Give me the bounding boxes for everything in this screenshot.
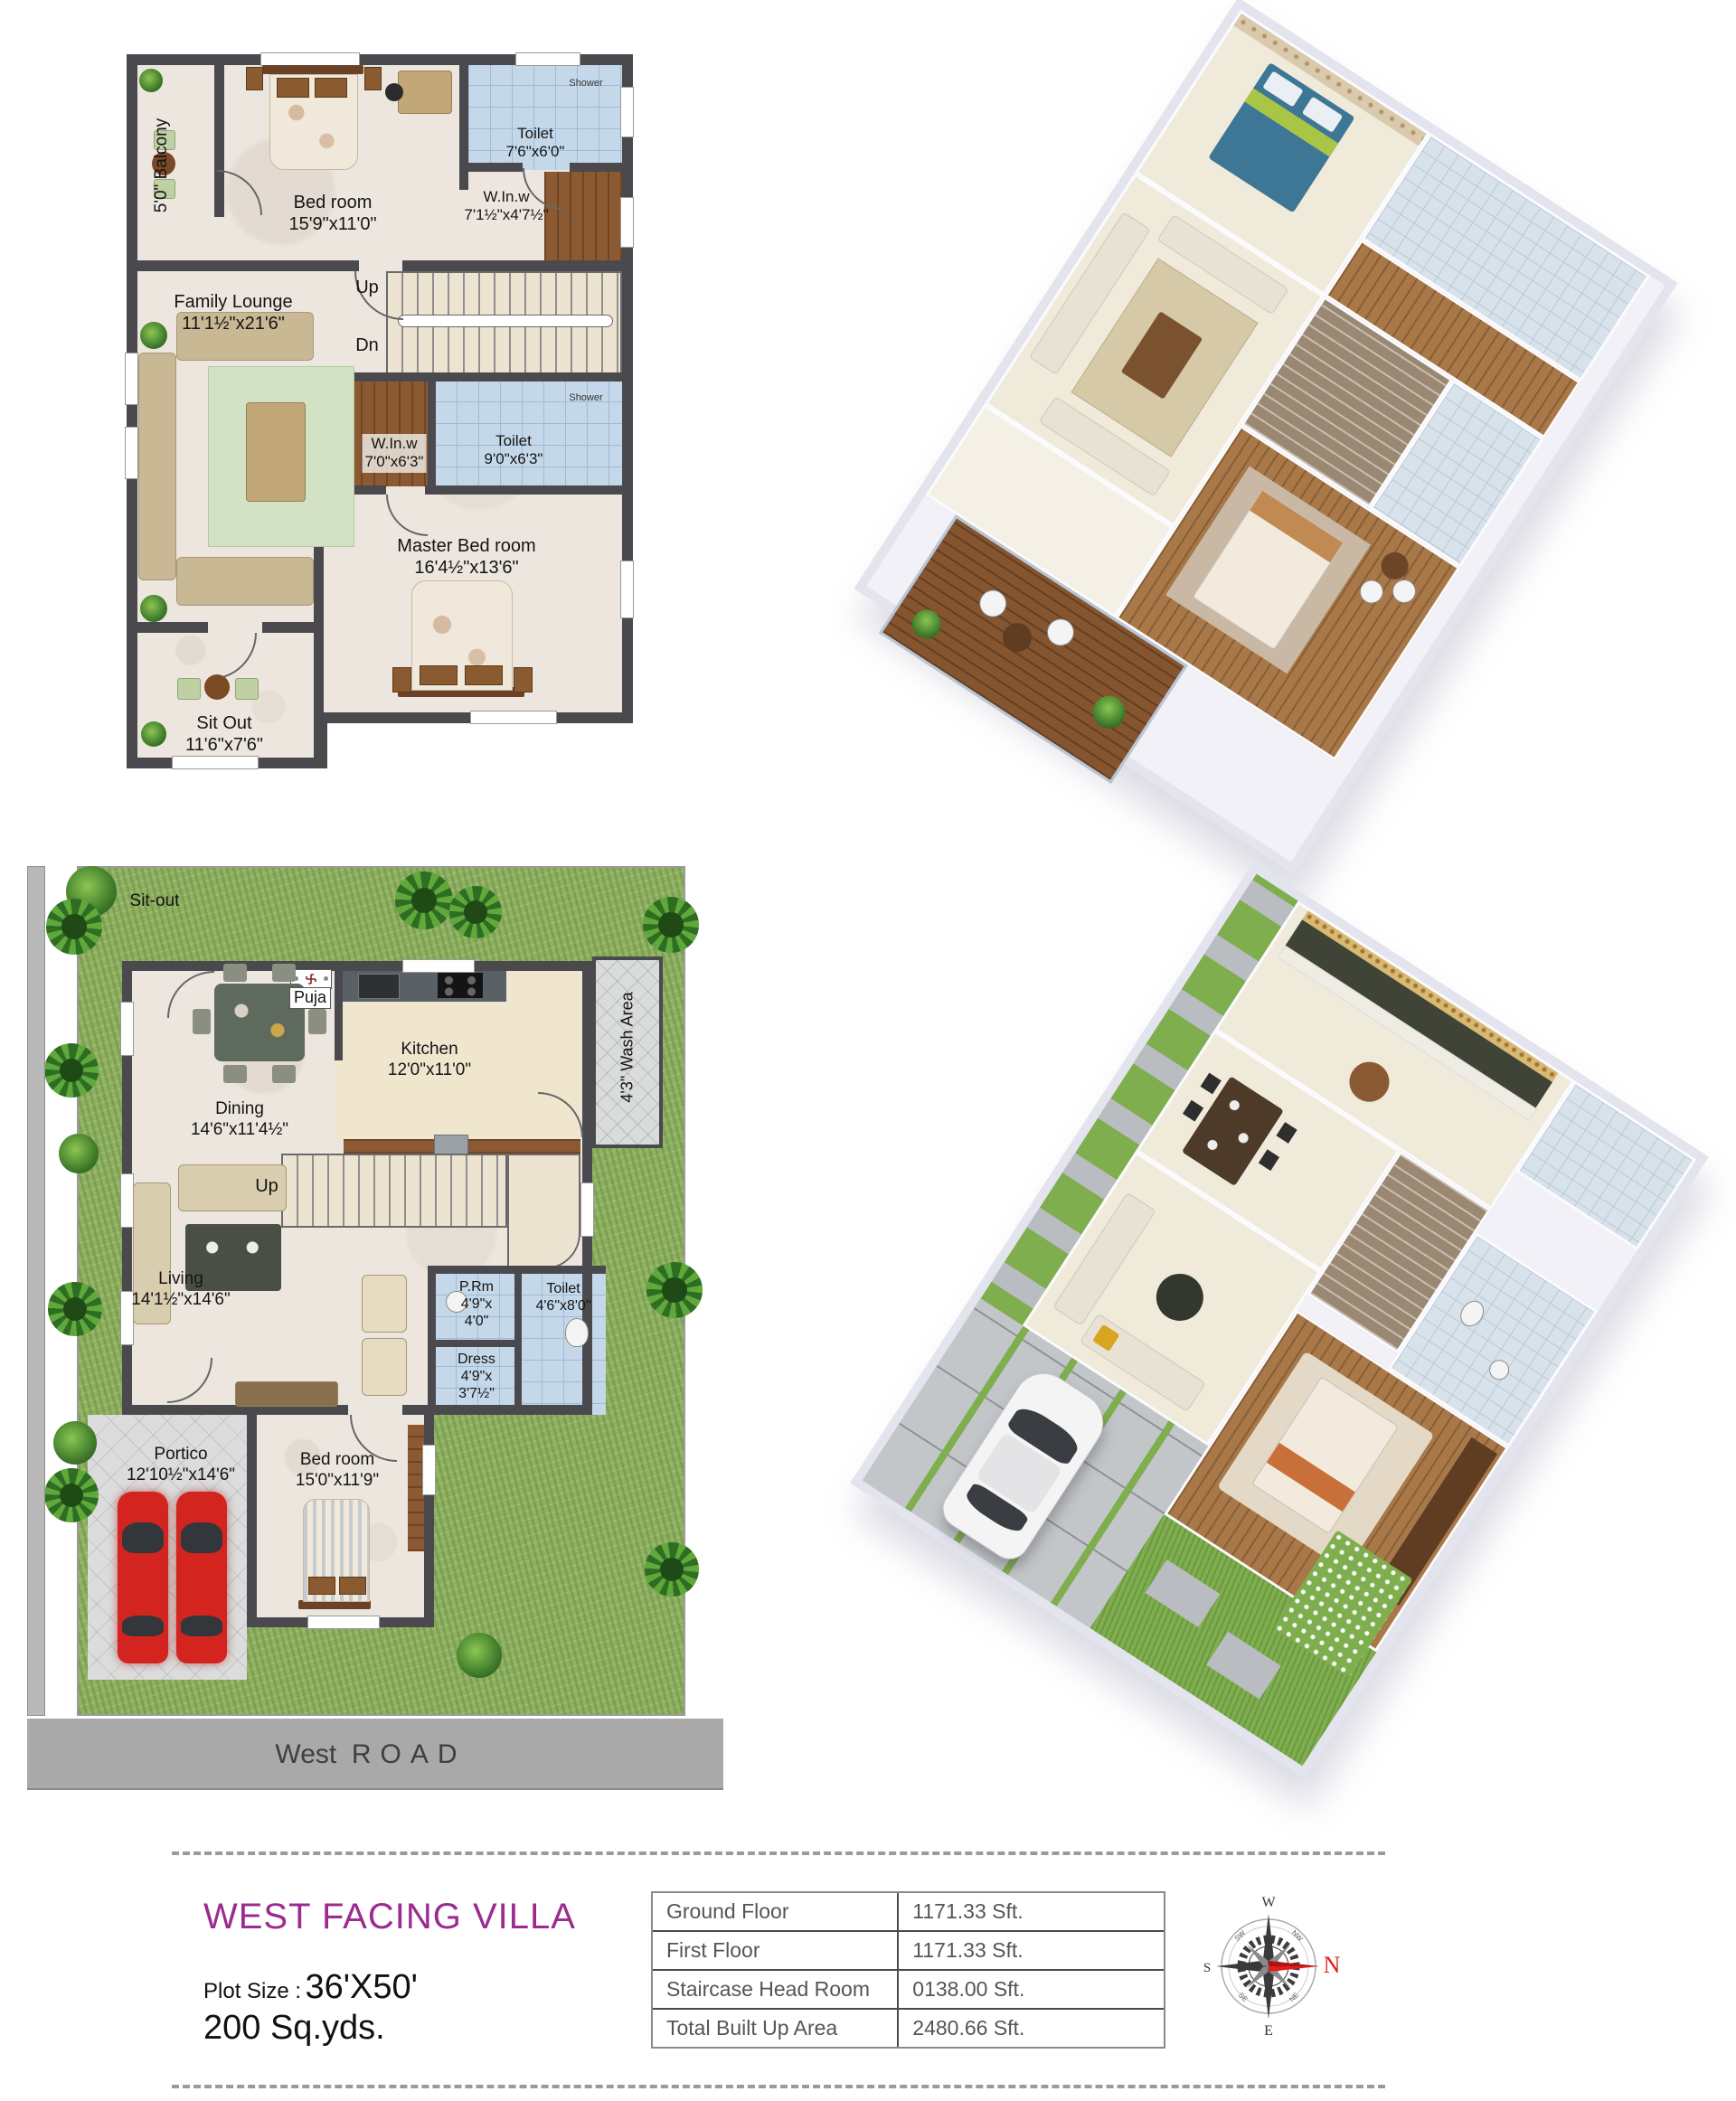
compass-east: E xyxy=(1264,2023,1273,2039)
compass-nw: NW xyxy=(1290,1928,1305,1943)
dining-label: Dining 14'6"x11'4½" xyxy=(191,1099,288,1141)
window xyxy=(172,756,259,769)
room-dims: 12'0"x11'0" xyxy=(388,1060,471,1079)
wall-balcony-bottom xyxy=(127,260,224,271)
stair-rail xyxy=(398,315,613,327)
iso-chair xyxy=(1259,1149,1279,1171)
red-car xyxy=(176,1492,227,1663)
dining-chair xyxy=(272,964,296,982)
window xyxy=(125,353,138,405)
ground-floor-site-plan: Sit-out Puja Kitchen 12'0"x11'0" 4'3" Wa… xyxy=(77,866,685,1716)
window xyxy=(125,427,138,479)
room-dims: 3'7½" xyxy=(458,1386,495,1401)
family-lounge-label: Family Lounge 11'1½"x21'6" xyxy=(174,291,292,334)
puja-label: Puja xyxy=(289,987,331,1009)
dn-label: Dn xyxy=(355,334,379,356)
room-name: Dress xyxy=(458,1352,495,1367)
palm-tree xyxy=(44,1043,99,1098)
sitout-label: Sit Out 11'6"x7'6" xyxy=(185,712,263,756)
road-word: West xyxy=(275,1739,336,1769)
first-floor-3d-view xyxy=(854,0,1677,874)
living-armchair xyxy=(362,1338,407,1396)
road-label: West ROAD xyxy=(275,1738,466,1771)
room-dims: 14'6"x11'4½" xyxy=(191,1120,288,1139)
plant xyxy=(140,595,167,622)
room-dims: 7'1½"x4'7½" xyxy=(464,206,548,223)
palm-tree xyxy=(645,1542,699,1597)
stepping-stone xyxy=(1206,1632,1281,1700)
iso-chair xyxy=(1355,576,1388,608)
room-dims: 16'4½"x13'6" xyxy=(414,558,518,578)
ground-floor-3d-view xyxy=(850,862,1709,1778)
up-label: Up xyxy=(255,1175,278,1197)
wall-bedroom-bottom-a xyxy=(214,260,359,271)
room-dims: 9'0"x6'3" xyxy=(485,450,543,467)
dining-chair xyxy=(223,1065,247,1083)
kitchen-label: Kitchen 12'0"x11'0" xyxy=(388,1040,471,1081)
separator-bottom xyxy=(172,2085,1385,2088)
separator-top xyxy=(172,1851,1385,1855)
palm-tree xyxy=(646,1262,703,1318)
window xyxy=(402,959,475,973)
bush xyxy=(53,1421,97,1465)
table-row: Staircase Head Room 0138.00 Sft. xyxy=(653,1969,1164,2008)
room-name: Toilet xyxy=(495,432,532,449)
table-row: First Floor 1171.33 Sft. xyxy=(653,1930,1164,1969)
room-dims: 4'9"x xyxy=(461,1369,493,1384)
pillow xyxy=(465,665,503,685)
wall-toilet-top-bottom2 xyxy=(570,163,633,172)
iso-counter xyxy=(1286,919,1552,1107)
balcony-label: 5'0" Balcony xyxy=(152,89,172,242)
master-bedroom-label: Master Bed room 16'4½"x13'6" xyxy=(397,535,535,579)
iso-chair xyxy=(1388,575,1420,608)
iso-breakfast-table xyxy=(1342,1054,1397,1109)
bed-nightstand xyxy=(364,67,382,90)
wall-winw-toilet-div xyxy=(428,382,436,486)
room-name: Portico xyxy=(154,1445,207,1464)
area-table: Ground Floor 1171.33 Sft. First Floor 11… xyxy=(651,1891,1165,2049)
room-dims: 4'9"x xyxy=(461,1296,493,1312)
row-value: 1171.33 Sft. xyxy=(897,1893,1164,1930)
pillow xyxy=(420,665,458,685)
window xyxy=(120,1002,134,1056)
winw-mid-label: W.In.w 7'0"x6'3" xyxy=(363,434,427,473)
room-dims: 4'0" xyxy=(465,1314,489,1329)
row-label: Staircase Head Room xyxy=(653,1971,897,2008)
iso-chair xyxy=(1276,1122,1297,1144)
room-dims: 15'9"x11'0" xyxy=(288,214,376,234)
prm-label: P.Rm 4'9"x 4'0" xyxy=(459,1278,494,1331)
toilet-mid-label: Toilet 9'0"x6'3" xyxy=(485,432,543,469)
iso-wc xyxy=(1456,1296,1488,1331)
study-desk xyxy=(398,71,452,114)
window xyxy=(620,197,634,248)
window xyxy=(620,87,634,137)
master-nightstand xyxy=(392,667,411,692)
car-windshield xyxy=(122,1522,164,1553)
row-label: First Floor xyxy=(653,1932,897,1969)
plant xyxy=(140,322,167,349)
compass-south: S xyxy=(1203,1961,1211,1975)
gf-wall-top xyxy=(122,961,592,971)
living-armchair xyxy=(362,1275,407,1333)
iso-chair xyxy=(1201,1073,1222,1095)
bed-nightstand xyxy=(246,67,263,90)
window xyxy=(620,561,634,618)
wall-sitout-top-b xyxy=(262,622,324,633)
plot-area: 200 Sq.yds. xyxy=(203,2009,637,2048)
dining-chair xyxy=(308,1009,326,1034)
dining-chair xyxy=(272,1065,296,1083)
room-dims: 4'6"x8'0" xyxy=(535,1298,590,1314)
dining-chair xyxy=(193,1009,211,1034)
desk-chair xyxy=(385,83,403,101)
room-dims: 11'6"x7'6" xyxy=(185,735,263,755)
bedroom-label: Bed room 15'9"x11'0" xyxy=(288,192,376,235)
table-row: Total Built Up Area 2480.66 Sft. xyxy=(653,2008,1164,2047)
bedroom-wall-left xyxy=(247,1415,257,1627)
winw-top-label: W.In.w 7'1½"x4'7½" xyxy=(464,188,548,225)
road: West ROAD xyxy=(27,1716,723,1790)
palm-tree xyxy=(46,899,102,955)
row-value: 2480.66 Sft. xyxy=(897,2010,1164,2047)
page-title: WEST FACING VILLA xyxy=(203,1897,637,1937)
window xyxy=(580,1182,594,1237)
sitout-label: Sit-out xyxy=(130,891,180,912)
car-rear-window xyxy=(122,1616,164,1636)
iso-deck-chair xyxy=(1042,614,1079,651)
gf-bath-wall-mid xyxy=(514,1273,522,1415)
window xyxy=(515,52,580,66)
room-name: W.In.w xyxy=(371,435,417,452)
wall-right xyxy=(622,54,633,723)
wall-left xyxy=(127,54,137,768)
iso-deck-chair xyxy=(974,585,1011,622)
toilet-top-label: Toilet 7'6"x6'0" xyxy=(506,125,565,162)
room-name: Bed room xyxy=(300,1450,374,1469)
palm-tree xyxy=(643,897,699,953)
gf-toilet-label: Toilet 4'6"x8'0" xyxy=(535,1280,590,1314)
pillow xyxy=(339,1577,366,1595)
window xyxy=(470,711,557,724)
room-dims: 7'0"x6'3" xyxy=(365,453,424,470)
room-name: P.Rm xyxy=(459,1279,494,1295)
gf-prm-dress-div xyxy=(434,1340,515,1347)
row-label: Ground Floor xyxy=(653,1893,897,1930)
shower-label: Shower xyxy=(569,78,602,90)
kitchen-hob xyxy=(438,973,483,998)
room-name: W.In.w xyxy=(483,188,529,205)
sitout-table xyxy=(204,674,230,700)
wall-master-top-b xyxy=(425,485,622,495)
room-name: Bed room xyxy=(294,193,373,212)
ground-staircase xyxy=(281,1154,507,1228)
room-dims: 11'1½"x21'6" xyxy=(182,314,285,334)
living-label: Living 14'1½"x14'6" xyxy=(131,1269,231,1311)
room-name: Kitchen xyxy=(401,1040,458,1059)
road-word: ROAD xyxy=(352,1739,467,1769)
wall-bedroom-bottom-b xyxy=(402,260,633,271)
kitchen-counter xyxy=(342,969,506,1002)
gf-bedroom-label: Bed room 15'0"x11'9" xyxy=(296,1450,379,1492)
palm-tree xyxy=(449,886,502,938)
car-rear-window xyxy=(181,1616,222,1636)
wall-mid-horiz xyxy=(314,372,622,382)
palm-tree xyxy=(48,1282,102,1336)
title-block: WEST FACING VILLA Plot Size : 36'X50' 20… xyxy=(203,1897,637,2048)
bush xyxy=(59,1134,99,1173)
lounge-table xyxy=(246,402,306,502)
window xyxy=(260,52,360,66)
room-dims: 14'1½"x14'6" xyxy=(131,1290,231,1309)
window xyxy=(120,1173,134,1228)
villa-brochure-sheet: { "first_floor": { "balcony_label": "5'0… xyxy=(0,0,1736,2101)
lounge-sofa xyxy=(138,353,176,580)
iso-throw xyxy=(1267,1443,1355,1512)
shower-label: Shower xyxy=(569,392,602,404)
palm-tree xyxy=(44,1468,99,1522)
gf-kitchen-wall xyxy=(335,961,343,1060)
first-floor-plan: 5'0" Balcony Bed room 15'9"x11'0" Toilet… xyxy=(127,54,633,773)
room-name: Living xyxy=(158,1269,203,1288)
iso-round-table xyxy=(1147,1265,1212,1330)
row-value: 0138.00 Sft. xyxy=(897,1971,1164,2008)
master-nightstand xyxy=(514,667,533,692)
stair-landing xyxy=(507,1154,580,1269)
room-name: Toilet xyxy=(517,125,553,142)
wall-sitout-top-a xyxy=(127,622,208,633)
row-value: 1171.33 Sft. xyxy=(897,1932,1164,1969)
window xyxy=(307,1616,380,1629)
wash-area-label: 4'3" Wash Area xyxy=(618,957,637,1138)
room-name: Toilet xyxy=(546,1281,580,1296)
room-dims: 15'0"x11'9" xyxy=(296,1471,379,1490)
compass-sw: SW xyxy=(1232,1928,1247,1943)
plant xyxy=(1087,690,1132,735)
dress-label: Dress 4'9"x 3'7½" xyxy=(458,1351,495,1403)
lounge-sofa xyxy=(176,557,314,606)
puja-dot xyxy=(324,976,328,981)
iso-side-table xyxy=(1376,547,1413,584)
window xyxy=(422,1445,436,1495)
compass-west: W xyxy=(1261,1895,1276,1910)
iso-basin xyxy=(1486,1356,1513,1383)
room-dims: 7'6"x6'0" xyxy=(506,143,565,160)
red-car xyxy=(118,1492,168,1663)
wc xyxy=(565,1318,589,1347)
row-label: Total Built Up Area xyxy=(653,2010,897,2047)
kitchen-sink xyxy=(358,974,400,999)
car-windshield xyxy=(181,1522,222,1553)
pillow xyxy=(315,78,347,98)
palm-tree xyxy=(395,871,453,929)
plot-size-label: Plot Size : xyxy=(203,1979,301,2003)
room-dims: 12'10½"x14'6" xyxy=(127,1465,235,1484)
room-name: Dining xyxy=(215,1099,264,1118)
dining-chair xyxy=(223,964,247,982)
portico-label: Portico 12'10½"x14'6" xyxy=(127,1445,235,1486)
room-name: Sit Out xyxy=(196,713,251,733)
pillow xyxy=(277,78,309,98)
table-row: Ground Floor 1171.33 Sft. xyxy=(653,1893,1164,1930)
wall-toilet-top-bottom xyxy=(459,163,523,172)
stepping-stone xyxy=(1146,1559,1221,1627)
compass-north: N xyxy=(1324,1952,1341,1978)
plot-size-line: Plot Size : 36'X50' xyxy=(203,1968,637,2007)
room-name: Family Lounge xyxy=(174,292,292,312)
iso-chair xyxy=(1183,1100,1203,1122)
sitout-chair xyxy=(235,678,259,700)
bed-headboard xyxy=(262,65,363,74)
bush xyxy=(457,1633,502,1678)
iso-deck-table xyxy=(997,617,1037,657)
iso-cushion xyxy=(1092,1324,1119,1352)
plant xyxy=(141,721,166,747)
white-car xyxy=(935,1361,1115,1567)
sitout-chair xyxy=(177,678,201,700)
compound-wall xyxy=(27,866,45,1716)
compass-rose-icon: W N S E SW NW SE NE xyxy=(1192,1889,1345,2043)
room-name: Master Bed room xyxy=(397,536,535,556)
plant xyxy=(907,604,947,644)
swastika-icon xyxy=(305,973,317,985)
plot-size-value: 36'X50' xyxy=(306,1968,418,2006)
tv-unit xyxy=(235,1381,338,1407)
up-label: Up xyxy=(355,277,379,298)
pillow xyxy=(308,1577,335,1595)
